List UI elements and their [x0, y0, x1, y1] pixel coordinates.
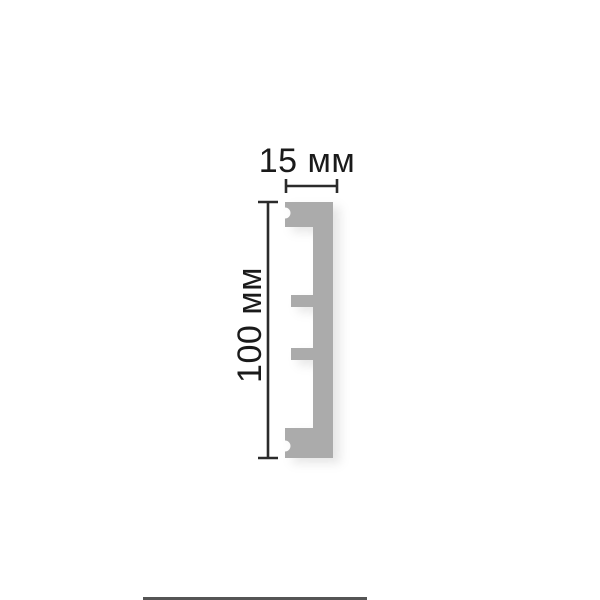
height-dimension-label: 100 мм [232, 245, 268, 405]
diagram-canvas: 15 мм 100 мм [0, 0, 600, 600]
profile-cross-section-shape [285, 202, 333, 458]
profile-drawing [0, 0, 600, 600]
width-dimension-label: 15 мм [227, 143, 387, 179]
